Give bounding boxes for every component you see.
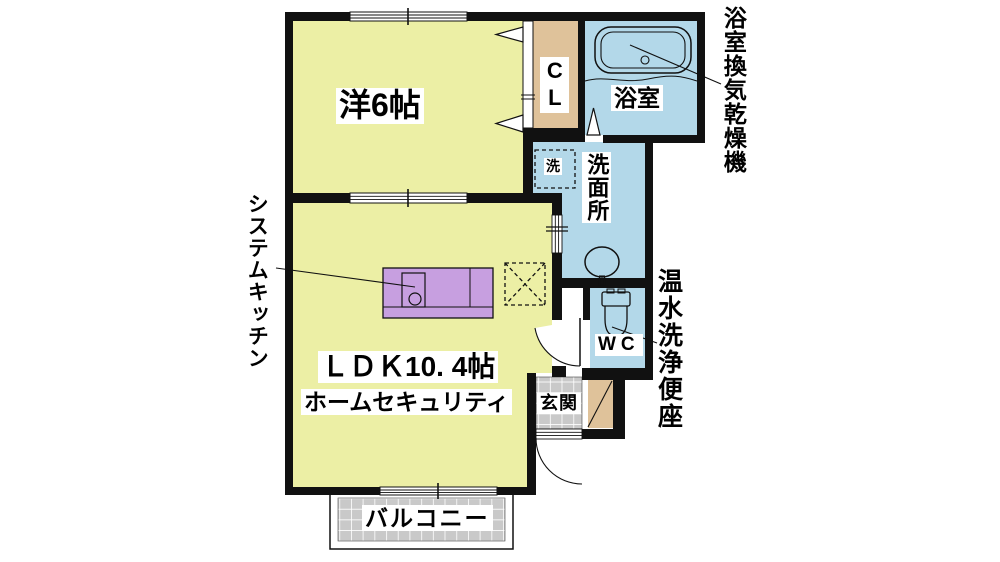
western-room-label: 洋6帖 bbox=[336, 88, 424, 124]
floor-plan-drawing bbox=[0, 0, 1000, 562]
washer-space-label: 洗 bbox=[544, 158, 562, 175]
wc-label: WC bbox=[595, 334, 643, 356]
home-security-label: ホームセキュリティ bbox=[301, 389, 512, 415]
washlet-annotation: 温水洗浄便座 bbox=[655, 268, 682, 430]
bathroom-label: 浴室 bbox=[611, 85, 663, 111]
ldk-area bbox=[293, 203, 552, 487]
entrance-door bbox=[536, 429, 582, 484]
balcony-label: バルコニー bbox=[362, 505, 493, 531]
bathroom-dryer-annotation: 浴室換気乾燥機 bbox=[721, 6, 745, 174]
entrance-label: 玄関 bbox=[537, 393, 581, 414]
ldk-label: ＬＤＫ10. 4帖 bbox=[318, 351, 498, 383]
washroom-label: 洗面所 bbox=[582, 152, 611, 223]
kitchen-counter bbox=[383, 268, 493, 318]
closet-label: CL bbox=[540, 57, 569, 113]
system-kitchen-annotation: システムキッチン bbox=[245, 193, 267, 369]
entrance-door-arc bbox=[536, 438, 582, 484]
bathroom-area bbox=[585, 21, 697, 135]
floor-plan: 洋6帖 CL 浴室 洗面所 洗 WC 玄関 ＬＤＫ10. 4帖 ホームセキュリテ… bbox=[0, 0, 1000, 562]
